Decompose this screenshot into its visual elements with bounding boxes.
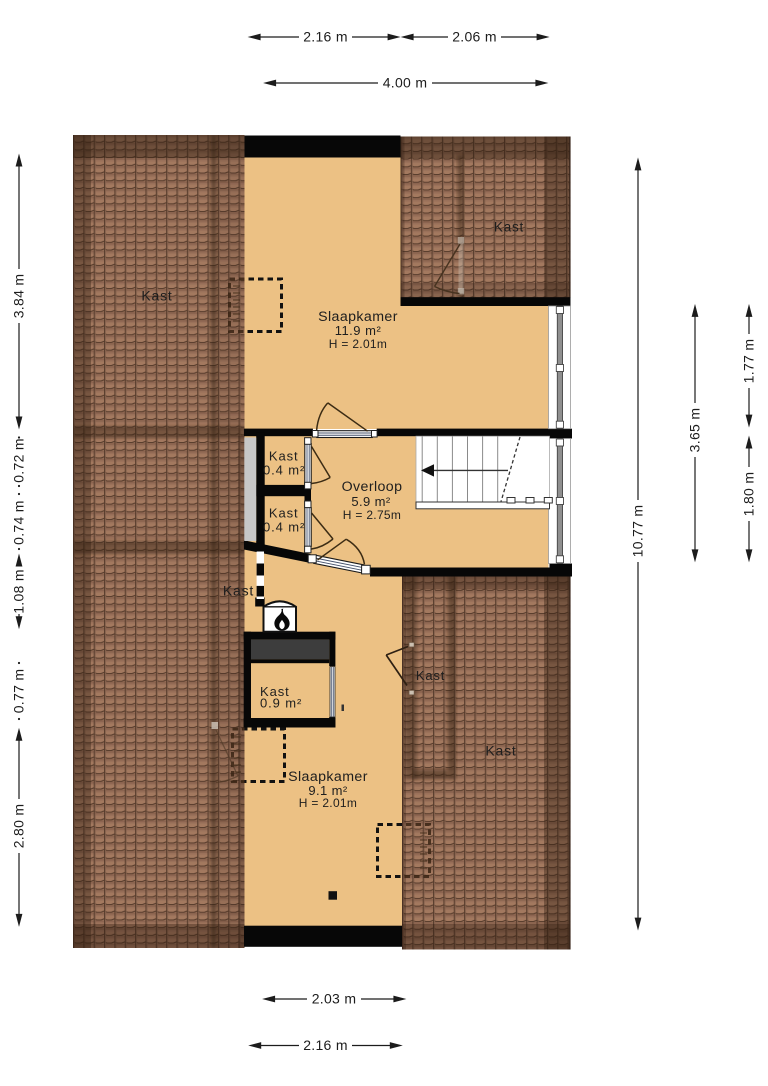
- svg-text:3.65 m: 3.65 m: [687, 408, 703, 453]
- svg-text:10.77 m: 10.77 m: [630, 505, 646, 558]
- svg-text:1.77 m: 1.77 m: [741, 339, 757, 384]
- svg-text:0.4 m²: 0.4 m²: [263, 462, 305, 477]
- svg-text:5.9 m²: 5.9 m²: [351, 494, 391, 509]
- svg-text:0.4 m²: 0.4 m²: [263, 519, 305, 534]
- svg-text:4.00 m: 4.00 m: [383, 75, 428, 91]
- svg-text:2.16 m: 2.16 m: [303, 1037, 348, 1053]
- svg-text:1.80 m: 1.80 m: [741, 472, 757, 517]
- svg-text:Kast: Kast: [485, 743, 516, 759]
- svg-text:Kast: Kast: [141, 288, 172, 304]
- svg-text:0.77 m: 0.77 m: [11, 669, 27, 714]
- svg-text:11.9 m²: 11.9 m²: [335, 323, 382, 338]
- svg-text:2.16 m: 2.16 m: [303, 29, 348, 45]
- svg-text:H = 2.75m: H = 2.75m: [343, 508, 401, 522]
- svg-text:1.08 m: 1.08 m: [11, 569, 27, 614]
- svg-text:Kast: Kast: [494, 220, 524, 235]
- svg-text:0.72 m: 0.72 m: [11, 438, 27, 483]
- svg-text:H = 2.01m: H = 2.01m: [299, 796, 357, 810]
- svg-text:2.06 m: 2.06 m: [452, 29, 497, 45]
- svg-text:Kast: Kast: [223, 583, 254, 599]
- svg-text:H = 2.01m: H = 2.01m: [329, 337, 387, 351]
- svg-text:Kast: Kast: [416, 668, 445, 683]
- svg-text:0.9 m²: 0.9 m²: [260, 696, 302, 711]
- svg-text:Kast: Kast: [269, 506, 299, 521]
- svg-text:3.84 m: 3.84 m: [11, 274, 27, 319]
- svg-text:2.80 m: 2.80 m: [11, 804, 27, 849]
- svg-text:Overloop: Overloop: [342, 479, 403, 495]
- svg-text:Kast: Kast: [269, 449, 299, 464]
- svg-text:0.74 m: 0.74 m: [11, 500, 27, 545]
- svg-text:2.03 m: 2.03 m: [312, 991, 357, 1007]
